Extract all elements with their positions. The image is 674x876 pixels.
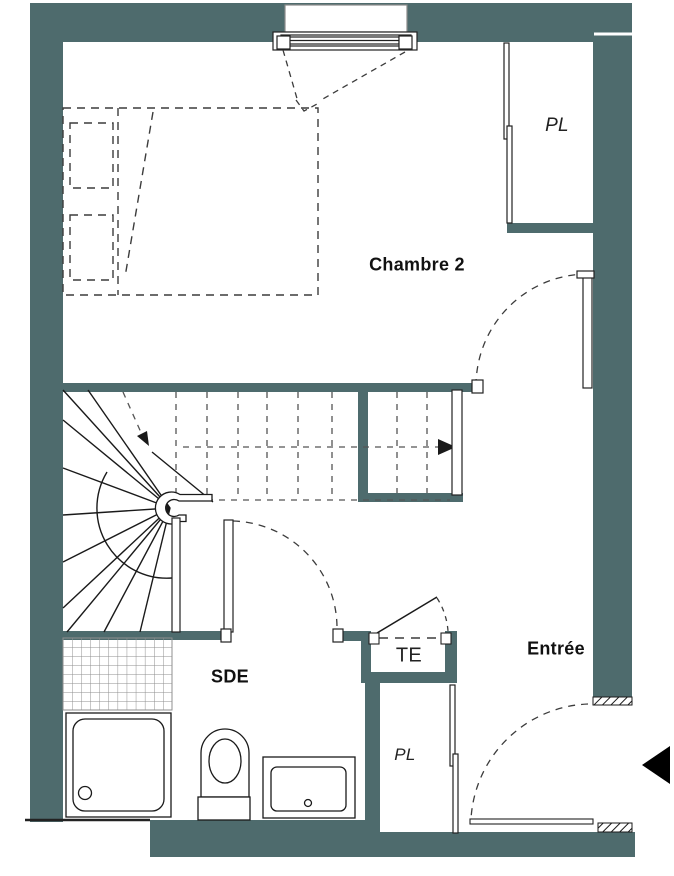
window-cone — [283, 50, 405, 111]
floor-plan: Chambre 2 PL SDE TE PL Entrée — [0, 0, 674, 876]
entrance-arrow-icon — [642, 746, 670, 784]
shower — [66, 713, 171, 817]
room-label-closet-top: PL — [545, 115, 569, 137]
room-label-chambre2: Chambre 2 — [369, 255, 465, 276]
stair-newel — [155, 492, 212, 524]
staircase — [63, 390, 462, 632]
closet-bottom-sliding-door — [450, 685, 458, 833]
closet-top-sliding-door — [504, 43, 512, 223]
tiled-floor — [63, 638, 172, 710]
sink — [263, 757, 355, 818]
bed — [63, 108, 318, 295]
floor-plan-drawing — [0, 0, 674, 876]
room-label-sde: SDE — [211, 667, 249, 688]
entrance-opening-hatch — [593, 697, 632, 832]
toilet — [198, 729, 250, 820]
sde-door — [221, 520, 343, 642]
entrance-door — [470, 704, 593, 824]
room-label-closet-bottom: PL — [394, 745, 415, 765]
room-label-entree: Entrée — [527, 639, 585, 660]
chambre2-door — [472, 271, 594, 393]
te-door — [369, 597, 451, 644]
window — [273, 5, 417, 50]
room-label-te: TE — [396, 645, 422, 668]
stair-walkline-arrow — [137, 431, 149, 446]
